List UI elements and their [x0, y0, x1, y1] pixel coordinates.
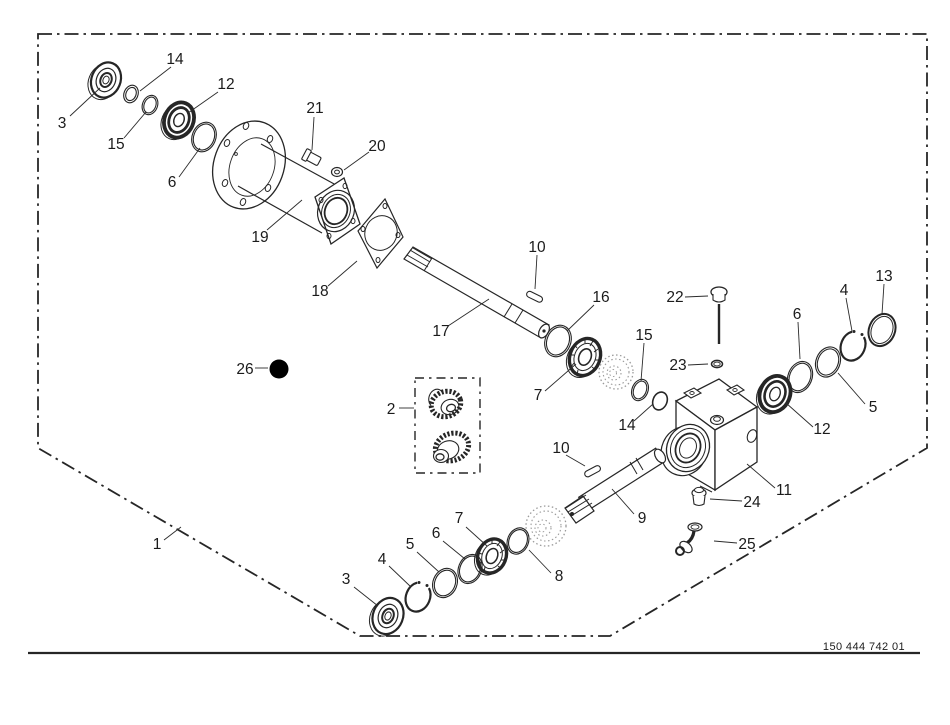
callout-15-upper: 15	[107, 136, 124, 153]
title-block: 150 444 742 01	[28, 641, 920, 653]
callout-12-upper: 12	[217, 76, 234, 93]
callout-20: 20	[368, 138, 386, 155]
callout-19: 19	[251, 229, 268, 246]
callout-2: 2	[387, 401, 396, 418]
callout-1: 1	[153, 536, 162, 553]
callout-14-mid: 14	[618, 417, 636, 434]
callout-4-right: 4	[840, 282, 849, 299]
o-ring-23	[712, 360, 723, 367]
callout-3-lower: 3	[342, 571, 351, 588]
callout-23: 23	[669, 357, 686, 374]
exploded-parts-diagram-page: 150 444 742 01	[0, 0, 950, 725]
ring-13	[864, 310, 900, 350]
callout-5-lower: 5	[406, 536, 415, 553]
marker-dot-26	[270, 360, 289, 379]
snap-ring-4-right	[836, 328, 869, 365]
flanged-tube-19	[201, 111, 361, 244]
callout-26: 26	[236, 361, 253, 378]
ring-5-lower	[428, 565, 461, 602]
callout-14-upper: 14	[166, 51, 184, 68]
callout-5-right: 5	[869, 399, 878, 416]
leader-lines	[70, 67, 884, 606]
callout-7-lower: 7	[455, 510, 464, 527]
elbow-fitting-25	[676, 523, 702, 555]
callout-16: 16	[592, 289, 609, 306]
taper-bearing-7-upper	[561, 334, 606, 382]
callout-6-upper: 6	[168, 174, 177, 191]
nut-20	[332, 168, 343, 177]
callout-10-lower: 10	[552, 440, 570, 457]
callout-25: 25	[738, 536, 755, 553]
key-10-upper	[526, 290, 544, 303]
callout-4-lower: 4	[378, 551, 387, 568]
o-ring-14-mid	[650, 390, 670, 412]
ring-15-mid	[628, 377, 651, 403]
callout-24: 24	[743, 494, 761, 511]
exploded-parts-diagram: 150 444 742 01	[0, 0, 950, 725]
callout-3-upper: 3	[58, 115, 67, 132]
callout-15-mid: 15	[635, 327, 652, 344]
ball-bearing-12-upper	[156, 98, 199, 144]
callout-6-lower: 6	[432, 525, 441, 542]
callout-10-upper: 10	[528, 239, 546, 256]
bolt-21	[301, 149, 322, 168]
callout-8: 8	[555, 568, 564, 585]
callout-6-right: 6	[793, 306, 802, 323]
callout-11: 11	[776, 482, 792, 499]
callout-13: 13	[875, 268, 892, 285]
bevel-gear-set-2	[415, 378, 480, 473]
callout-12-right: 12	[813, 421, 830, 438]
ring-15-upper	[139, 93, 160, 117]
dipstick-22	[711, 287, 727, 344]
callout-18: 18	[311, 283, 328, 300]
callout-21: 21	[306, 100, 323, 117]
breather-plug-24	[692, 487, 706, 505]
ghost-gear-upper	[599, 355, 633, 389]
seal-ring-3-upper	[83, 58, 126, 104]
drawing-number: 150 444 742 01	[823, 641, 905, 653]
ghost-gear-lower	[526, 506, 566, 546]
callout-7-upper: 7	[534, 387, 543, 404]
key-10-lower	[584, 465, 602, 478]
gearbox-housing-11	[653, 379, 758, 492]
output-shaft-9	[565, 447, 668, 523]
callout-9: 9	[638, 510, 647, 527]
callout-17: 17	[432, 323, 449, 340]
snap-ring-4-lower	[401, 579, 434, 616]
o-ring-14-upper	[121, 83, 141, 105]
callout-22: 22	[666, 289, 683, 306]
gasket-18	[358, 199, 403, 268]
